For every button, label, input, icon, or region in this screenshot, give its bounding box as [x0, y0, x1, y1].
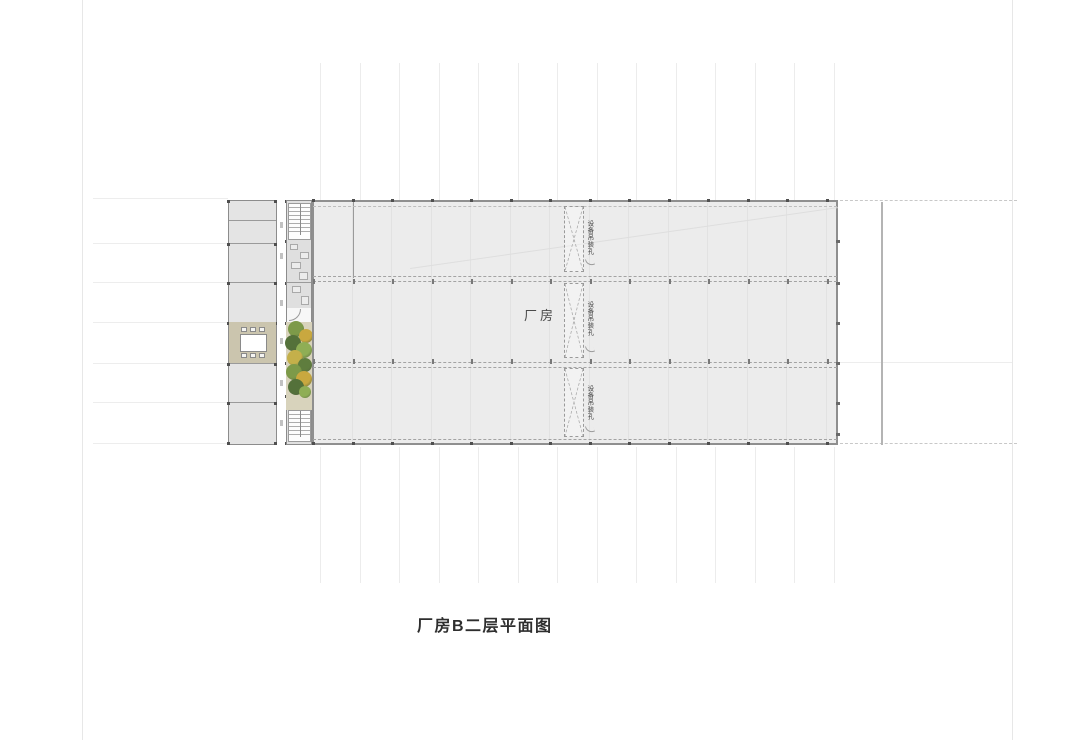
hoisting-opening [564, 283, 584, 358]
stair-rail [300, 204, 301, 235]
hall-partition [353, 202, 354, 278]
drawing-title: 厂房B二层平面图 [417, 612, 553, 636]
extension-line-mid [840, 362, 1012, 363]
chair [259, 327, 265, 332]
extension-line-top [840, 200, 1017, 201]
opening-label: 设备吊装孔 [585, 220, 592, 255]
adjacent-edge-line [881, 202, 883, 445]
chair [250, 327, 256, 332]
hoisting-opening [564, 368, 584, 437]
chair [259, 353, 265, 358]
chair [241, 353, 247, 358]
washroom-divider [287, 282, 311, 283]
page-grid-line-left [82, 0, 83, 740]
stair-south [288, 410, 311, 442]
extension-line-bottom [840, 443, 1017, 444]
opening-label: 设备吊装孔 [585, 385, 592, 420]
girder-line [313, 276, 837, 277]
floor-plan-canvas: 设备吊装孔 设备吊装孔 设备吊装孔 厂房 厂房B二层平面图 [0, 0, 1080, 740]
chair [250, 353, 256, 358]
tree-icon [299, 329, 313, 343]
conference-table [240, 334, 267, 352]
girder-line [313, 439, 837, 440]
stair-north [288, 203, 311, 240]
hoisting-opening [564, 206, 584, 272]
conference-room [229, 322, 276, 363]
page-grid-line-right [1012, 0, 1013, 740]
stair-rail [300, 411, 301, 437]
hall-label: 厂房 [524, 305, 556, 324]
tree-icon [299, 386, 311, 398]
opening-label: 设备吊装孔 [585, 301, 592, 336]
chair [241, 327, 247, 332]
